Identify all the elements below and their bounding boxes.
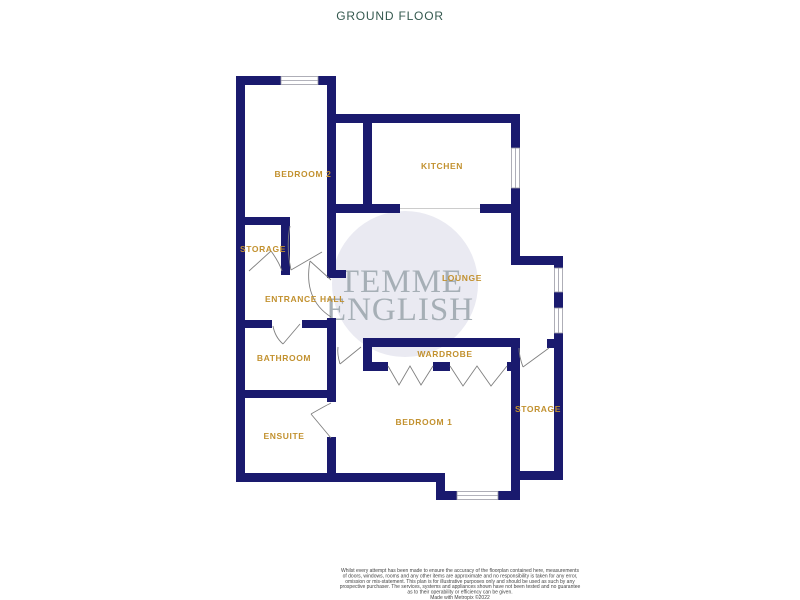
wall-segment [363,123,372,213]
room-label-wardrobe: WARDROBE [417,349,472,359]
disclaimer: Whilst every attempt has been made to en… [340,568,581,600]
room-label-bedroom-2: BEDROOM 2 [275,169,332,179]
wall-segment [547,339,563,348]
door-arc [249,251,282,271]
wall-segment [236,473,445,482]
wall-segment [554,256,563,268]
window [512,148,520,188]
wall-segment [363,362,388,371]
wall-segment [436,491,457,500]
wall-segment [363,338,520,347]
wall-segment [433,362,450,371]
room-label-bathroom: BATHROOM [257,353,311,363]
door-arc [519,348,549,367]
window [555,308,563,333]
room-label-storage-right: STORAGE [515,404,561,414]
window [555,268,563,292]
page-title: GROUND FLOOR [336,9,444,23]
wall-segment [327,270,346,278]
window [281,77,318,85]
wall-segment [336,114,519,123]
wall-segment [511,471,563,480]
door-arc [311,403,331,438]
wall-segment [236,390,336,398]
room-label-bedroom-1: BEDROOM 1 [396,417,453,427]
wall-segment [498,491,520,500]
room-label-ensuite: ENSUITE [263,431,304,441]
wall-segment [511,188,520,265]
door-arc [338,347,361,364]
floorplan-canvas: GROUND FLOOR TEMME ENGLISH [0,0,800,600]
door-arc [273,324,300,344]
wall-segment [327,318,336,402]
door-arc [288,226,322,270]
wall-segment [302,320,336,328]
room-label-lounge: LOUNGE [442,273,482,283]
wall-segment [236,217,288,225]
bifold-door [450,366,507,386]
wall-segment [236,76,245,482]
room-label-entrance-hall: ENTRANCE HALL [265,294,345,304]
room-label-storage-left: STORAGE [240,244,286,254]
wall-segment [236,320,272,328]
wall-segment [336,204,400,213]
window [457,492,498,500]
floorplan-page: GROUND FLOOR TEMME ENGLISH [0,0,800,600]
wall-segment [236,76,281,85]
watermark-line2: ENGLISH [326,292,474,328]
watermark: TEMME ENGLISH [326,211,478,357]
disclaimer-line: Made with Metropix ©2022 [430,594,490,600]
room-label-kitchen: KITCHEN [421,161,463,171]
bifold-door [388,366,433,385]
wall-segment [511,114,520,148]
wall-segment [554,292,563,308]
